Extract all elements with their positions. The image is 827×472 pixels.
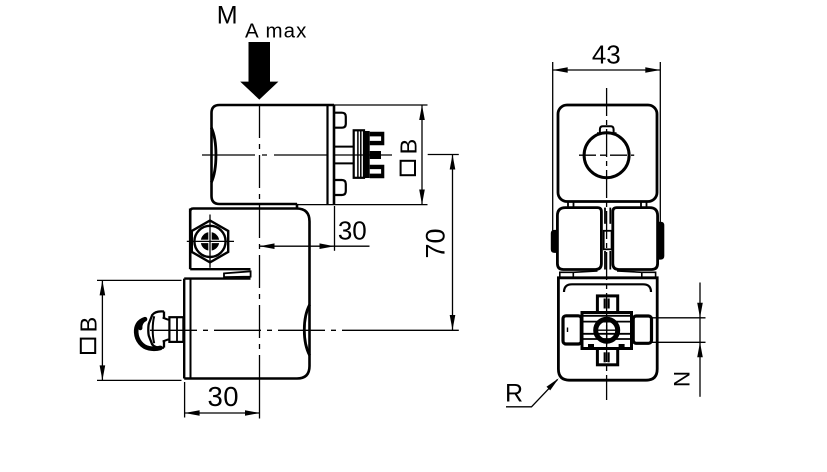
svg-text:B: B (75, 317, 101, 333)
svg-text:B: B (395, 139, 421, 155)
svg-text:43: 43 (592, 40, 621, 70)
svg-text:N: N (670, 371, 695, 387)
svg-text:A max: A max (245, 20, 307, 43)
svg-text:M: M (217, 2, 238, 30)
svg-text:30: 30 (208, 381, 240, 412)
svg-text:70: 70 (420, 228, 450, 258)
svg-text:R: R (505, 379, 523, 407)
svg-text:30: 30 (338, 216, 367, 246)
